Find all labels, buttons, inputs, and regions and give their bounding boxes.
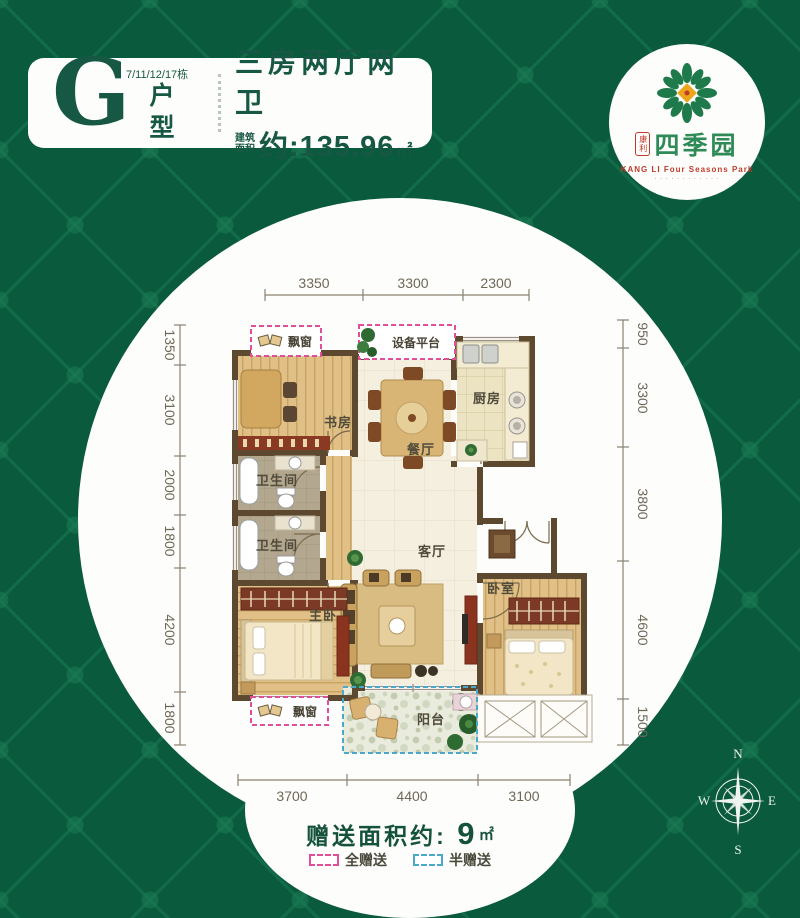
gift-legend: 全赠送 半赠送 xyxy=(0,850,800,870)
room-count-headline: 三房两厅两卫 xyxy=(235,41,418,121)
building-numbers: 7/11/12/17栋 xyxy=(126,66,188,82)
bay-window-top-label: 飘窗 xyxy=(288,334,312,349)
half-gift-label: 半赠送 xyxy=(449,850,491,870)
area-unit: ㎡ xyxy=(396,137,412,165)
dim-left-5: 4200 xyxy=(162,614,178,645)
living-label: 客厅 xyxy=(418,544,446,559)
full-gift-swatch-icon xyxy=(309,854,339,866)
gift-area-line: 赠送面积约: 9 ㎡ xyxy=(0,816,800,852)
legend-full-gift: 全赠送 xyxy=(309,850,387,870)
area-prefix-line2: 面积 xyxy=(235,144,255,156)
dim-bottom-3: 3100 xyxy=(508,788,539,804)
ac-platform xyxy=(477,695,592,742)
bay-window-bottom-label: 飘窗 xyxy=(293,704,317,719)
area-row: 建筑 面积 约:135.96 ㎡ xyxy=(235,123,418,165)
dining-label: 餐厅 xyxy=(406,442,435,457)
dim-left-4: 1800 xyxy=(162,525,178,556)
gift-area-unit: ㎡ xyxy=(479,827,494,844)
master-bedroom-label: 主卧 xyxy=(309,608,337,623)
floorplan-svg: 飘窗 设备平台 飘窗 书房 餐厅 厨房 卫生间 卫生间 客厅 主卧 卧室 阳台 xyxy=(125,250,675,810)
area-value: 约:135.96 xyxy=(259,123,394,165)
dim-left-2: 3100 xyxy=(162,394,178,425)
unit-type-label: 户型 xyxy=(142,82,178,146)
dim-top-2: 3300 xyxy=(397,275,428,291)
dim-left-3: 2000 xyxy=(162,469,178,500)
equipment-platform-zone: 设备平台 xyxy=(357,325,455,359)
area-prefix-line1: 建筑 xyxy=(235,133,255,145)
dim-left-1: 1350 xyxy=(162,329,178,360)
unit-title-card: G 7/11/12/17栋 户型 三房两厅两卫 建筑 面积 约:135.96 ㎡ xyxy=(28,58,432,148)
dim-top-3: 2300 xyxy=(480,275,511,291)
dim-bottom-1: 3700 xyxy=(276,788,307,804)
gift-area-value: 9 xyxy=(457,816,474,851)
dim-bottom-2: 4400 xyxy=(396,788,427,804)
bath-lower-label: 卫生间 xyxy=(256,538,298,553)
bay-window-bottom-zone: 飘窗 xyxy=(251,697,328,725)
balcony-label: 阳台 xyxy=(417,712,445,727)
logo-tagline: · · · · · · · · · · · · xyxy=(654,176,719,182)
dim-right-2: 3300 xyxy=(635,382,651,413)
kitchen-label: 厨房 xyxy=(473,391,501,406)
gift-area-label: 赠送面积约: xyxy=(306,823,447,849)
logo-seal: 康利 xyxy=(635,132,650,156)
half-gift-swatch-icon xyxy=(413,854,443,866)
compass-east: E xyxy=(768,793,776,808)
logo-name-row: 康利 四季园 xyxy=(635,126,738,162)
title-divider xyxy=(218,74,221,132)
bath-upper-label: 卫生间 xyxy=(256,473,298,488)
study-label: 书房 xyxy=(324,415,352,430)
dim-top-1: 3350 xyxy=(298,275,329,291)
dim-right-5: 1500 xyxy=(635,706,651,737)
dim-right-3: 3800 xyxy=(635,488,651,519)
unit-letter: G xyxy=(52,42,131,143)
dim-right-4: 4600 xyxy=(635,614,651,645)
logo-name: 四季园 xyxy=(654,126,738,162)
dim-right-1: 950 xyxy=(635,322,651,346)
unit-summary: 三房两厅两卫 建筑 面积 约:135.96 ㎡ xyxy=(235,41,418,165)
compass-south: S xyxy=(734,842,741,857)
compass-west: W xyxy=(698,793,711,808)
equipment-platform-label: 设备平台 xyxy=(392,335,440,350)
full-gift-label: 全赠送 xyxy=(345,850,387,870)
compass-north: N xyxy=(733,746,743,761)
master-bedroom-furniture xyxy=(241,588,349,694)
unit-letter-block: G 7/11/12/17栋 户型 xyxy=(42,58,192,148)
area-prefix: 建筑 面积 xyxy=(235,133,255,156)
dim-left-6: 1800 xyxy=(162,702,178,733)
logo-subtitle: KANG LI Four Seasons Park xyxy=(621,165,754,174)
four-leaves-logo-icon xyxy=(655,62,719,124)
compass-rose-icon: N W E S xyxy=(694,742,782,860)
developer-logo-badge: 康利 四季园 KANG LI Four Seasons Park · · · ·… xyxy=(609,44,765,200)
legend-half-gift: 半赠送 xyxy=(413,850,491,870)
bay-window-top-zone: 飘窗 xyxy=(251,326,321,356)
bedroom-label: 卧室 xyxy=(487,581,515,596)
